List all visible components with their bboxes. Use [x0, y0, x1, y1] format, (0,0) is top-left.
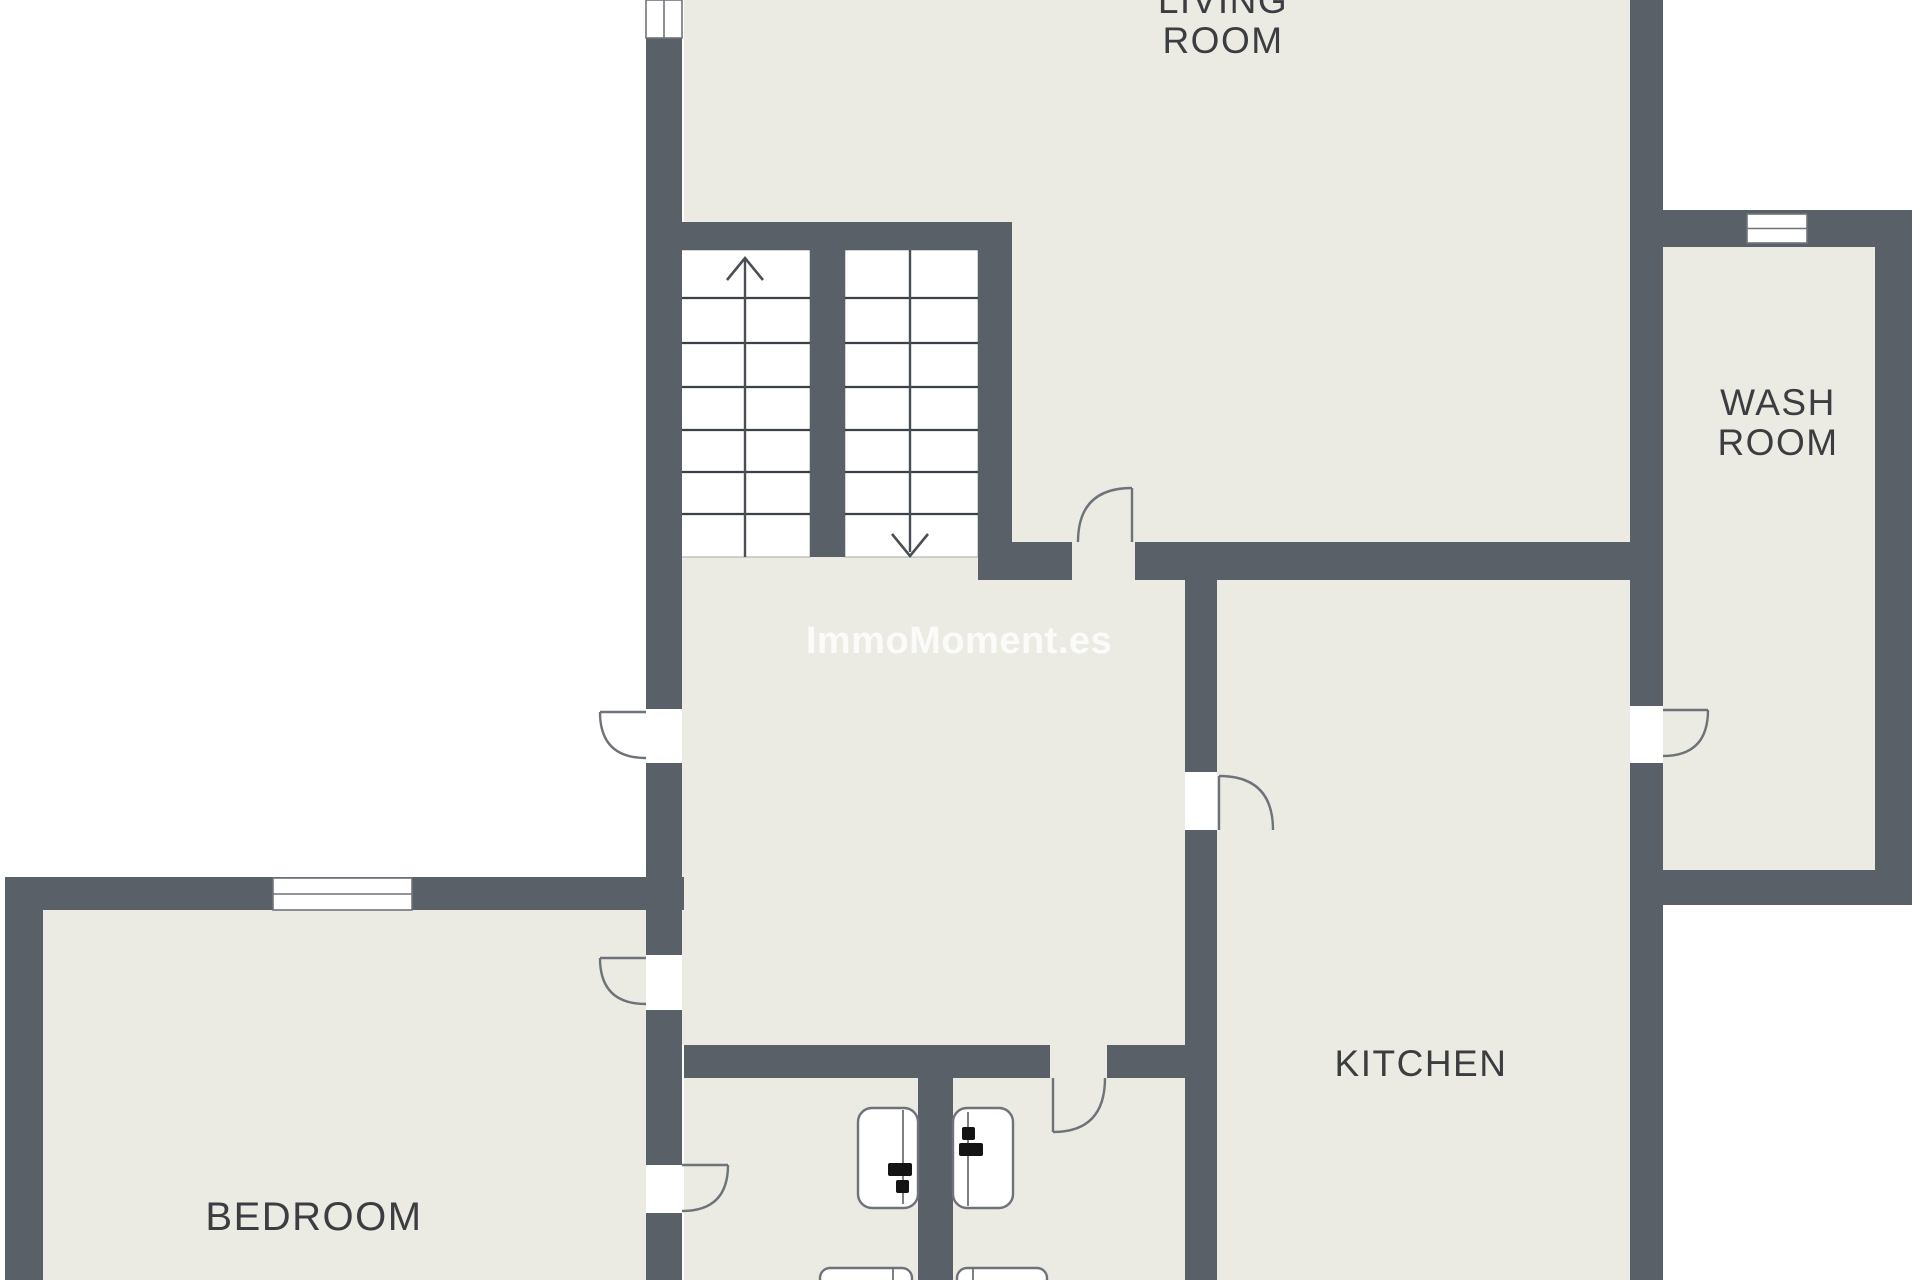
room-label-line: KITCHEN — [1335, 1044, 1508, 1084]
basin-right — [957, 1268, 1047, 1280]
room-label-line: BEDROOM — [205, 1197, 422, 1237]
wall — [1630, 0, 1663, 706]
wall — [646, 1010, 682, 1165]
room-fill — [1217, 542, 1630, 1280]
wall — [1135, 542, 1633, 580]
wall — [684, 1045, 1050, 1078]
room-label-living-room: LIVING ROOM — [1158, 0, 1288, 61]
room-label-line: WASH — [1717, 383, 1838, 423]
room-fill — [1663, 247, 1875, 870]
wall — [646, 763, 682, 955]
floorplan-page: { "watermark": { "text": "ImmoMoment.es"… — [0, 0, 1920, 1280]
basin-left — [820, 1268, 912, 1280]
room-label-wash-room: WASH ROOM — [1717, 383, 1838, 463]
watermark-text: ImmoMoment.es — [806, 621, 1112, 661]
toilet-left-button — [896, 1180, 909, 1193]
wall — [1875, 247, 1912, 905]
room-label-bedroom: BEDROOM — [205, 1197, 422, 1237]
toilet-right-button — [962, 1127, 975, 1140]
wall — [1663, 870, 1912, 905]
toilet-left — [858, 1108, 918, 1208]
wall — [1630, 763, 1663, 1280]
wall — [978, 250, 1012, 580]
room-label-kitchen: KITCHEN — [1335, 1044, 1508, 1084]
room-label-line: LIVING — [1158, 0, 1288, 21]
toilet-left-mark — [888, 1163, 912, 1176]
wall — [978, 542, 1072, 580]
door-porch-arc — [600, 712, 646, 758]
wall — [646, 38, 682, 709]
stair-flight — [845, 250, 978, 557]
wall — [1185, 830, 1217, 1280]
wall — [810, 250, 845, 557]
wall — [1185, 580, 1217, 772]
wall — [5, 910, 43, 1280]
room-label-line: ROOM — [1158, 21, 1288, 61]
wall — [918, 1078, 953, 1280]
room-label-line: ROOM — [1717, 423, 1838, 463]
toilet-right-mark — [959, 1143, 983, 1156]
wall — [646, 222, 1012, 250]
toilet-right — [953, 1108, 1013, 1208]
wall — [1107, 1045, 1185, 1078]
wall — [646, 1213, 682, 1280]
